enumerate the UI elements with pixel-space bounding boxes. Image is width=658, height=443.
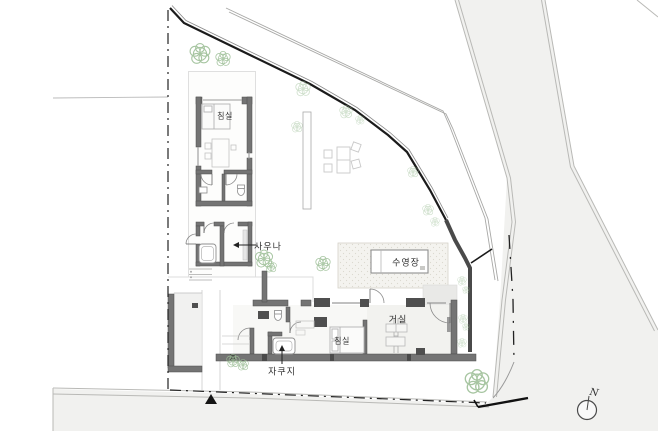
wall-segment	[253, 300, 288, 306]
wall-segment	[196, 170, 212, 174]
wall-segment	[247, 158, 252, 206]
room-label-bedroom-upper: 침실	[217, 111, 233, 122]
wall-segment	[268, 332, 282, 336]
tree-icon	[296, 81, 310, 95]
floor-plan-svg	[0, 0, 658, 443]
bed-pillow	[204, 106, 212, 112]
tree-icon	[255, 250, 272, 267]
tree-icon	[423, 204, 434, 215]
road-area	[53, 0, 658, 431]
tree-icon	[190, 44, 210, 64]
boundary-arrow-annotation	[471, 249, 492, 263]
wall-segment	[196, 201, 252, 206]
north-label: N	[589, 387, 600, 399]
wall-segment	[196, 222, 204, 226]
road-edge-line	[637, 0, 658, 17]
wall-segment	[250, 328, 254, 354]
sink-icon	[199, 187, 207, 193]
tree-icon	[216, 51, 230, 65]
column-pier	[416, 348, 425, 355]
tree-icon	[458, 338, 467, 347]
column-pier	[360, 299, 369, 307]
room-label-living: 거실	[389, 313, 408, 326]
tree-icon	[316, 256, 330, 270]
neighbor-line	[53, 97, 168, 98]
wall-segment	[168, 294, 174, 368]
coffee-table-outline	[386, 337, 405, 346]
tree-icon	[459, 314, 468, 323]
toilet-tank	[238, 185, 245, 189]
room-label-pool: 수영장	[392, 256, 420, 269]
tree-icon	[266, 261, 277, 272]
chair-outline	[324, 150, 332, 158]
column-pier	[406, 298, 425, 307]
wall-segment	[286, 307, 290, 322]
room-label-bedroom-lower: 침실	[334, 336, 350, 347]
step-mark	[190, 276, 192, 278]
wall-segment	[301, 300, 311, 306]
wall-segment	[222, 174, 225, 201]
tree-icon	[292, 121, 303, 132]
column-pier	[192, 303, 198, 308]
tree-icon	[458, 276, 467, 285]
wall-segment	[247, 97, 252, 153]
wall-segment	[451, 300, 457, 354]
column-pier	[330, 354, 334, 361]
wall-segment	[224, 170, 252, 174]
toilet-tank	[275, 311, 282, 315]
courtyard-planter	[303, 112, 311, 209]
chair-outline	[351, 159, 361, 169]
wall-segment	[168, 366, 202, 372]
tree-icon	[356, 115, 365, 124]
room-label-sauna: 사우나	[254, 240, 282, 253]
column-pier	[314, 298, 330, 307]
step-mark	[190, 271, 192, 273]
tree-icon	[408, 166, 419, 177]
road-fill	[53, 0, 658, 431]
door-arc	[370, 289, 384, 303]
floor-plan-page: 침실 사우나 수영장 거실 침실 자쿠지 N	[0, 0, 658, 443]
tree-icon	[465, 370, 488, 393]
tree-icon	[431, 217, 440, 226]
chair-outline	[351, 142, 361, 152]
room-label-jacuzzi: 자쿠지	[268, 365, 296, 378]
vanity-icon	[258, 311, 269, 319]
wall-segment	[196, 226, 200, 236]
courtyard-furniture	[324, 142, 361, 173]
living-floor	[367, 305, 451, 354]
wall-segment	[248, 222, 252, 266]
chair-outline	[324, 164, 332, 172]
tree-icon	[340, 105, 353, 118]
column-pier	[262, 354, 267, 361]
wall-segment	[214, 222, 224, 226]
column-pier	[407, 354, 411, 361]
wall-segment	[196, 97, 201, 147]
pool-step	[420, 266, 425, 270]
bottom-wall	[216, 354, 476, 361]
wall-segment	[262, 271, 267, 302]
column-pier	[314, 317, 327, 327]
wall-segment	[220, 226, 224, 266]
